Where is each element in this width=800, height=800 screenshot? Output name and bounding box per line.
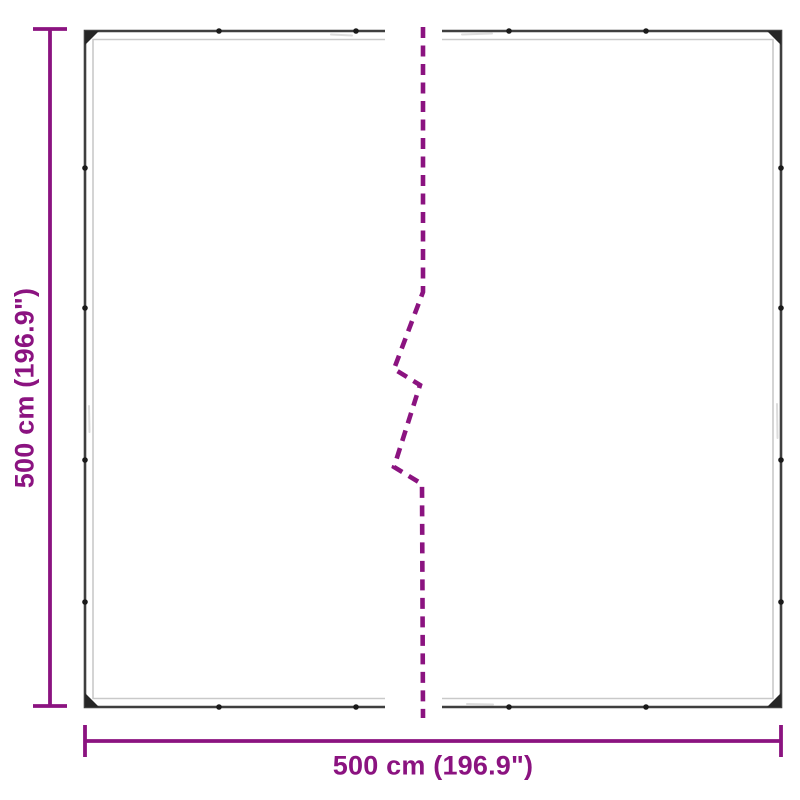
corner-patch-icon — [85, 693, 99, 707]
grommet-icon — [506, 704, 512, 710]
width-dimension-label: 500 cm (196.9") — [333, 751, 533, 782]
height-dimension-label: 500 cm (196.9") — [10, 288, 41, 488]
corner-patch-icon — [767, 31, 781, 45]
tarp-right-panel — [442, 31, 781, 707]
fold-marks — [89, 34, 778, 705]
grommet-icon — [643, 28, 649, 34]
grommet-icon — [82, 457, 88, 463]
product-dimension-diagram: 500 cm (196.9") 500 cm (196.9") — [0, 0, 800, 800]
corner-patch-icon — [85, 31, 99, 45]
grommet-icon — [778, 457, 784, 463]
grommet-icon — [216, 704, 222, 710]
grommet-icon — [643, 704, 649, 710]
grommet-icon — [82, 599, 88, 605]
tarp-left-panel — [85, 31, 385, 707]
grommet-icon — [506, 28, 512, 34]
corner-patch-icon — [767, 693, 781, 707]
grommet-icon — [82, 305, 88, 311]
break-line-icon — [394, 27, 423, 718]
grommet-icon — [82, 165, 88, 171]
grommet-icon — [216, 28, 222, 34]
grommet-icon — [353, 28, 359, 34]
grommet-icon — [353, 704, 359, 710]
tarp-illustration — [0, 0, 800, 800]
grommet-icon — [778, 165, 784, 171]
grommet-icon — [778, 599, 784, 605]
grommet-icon — [778, 305, 784, 311]
